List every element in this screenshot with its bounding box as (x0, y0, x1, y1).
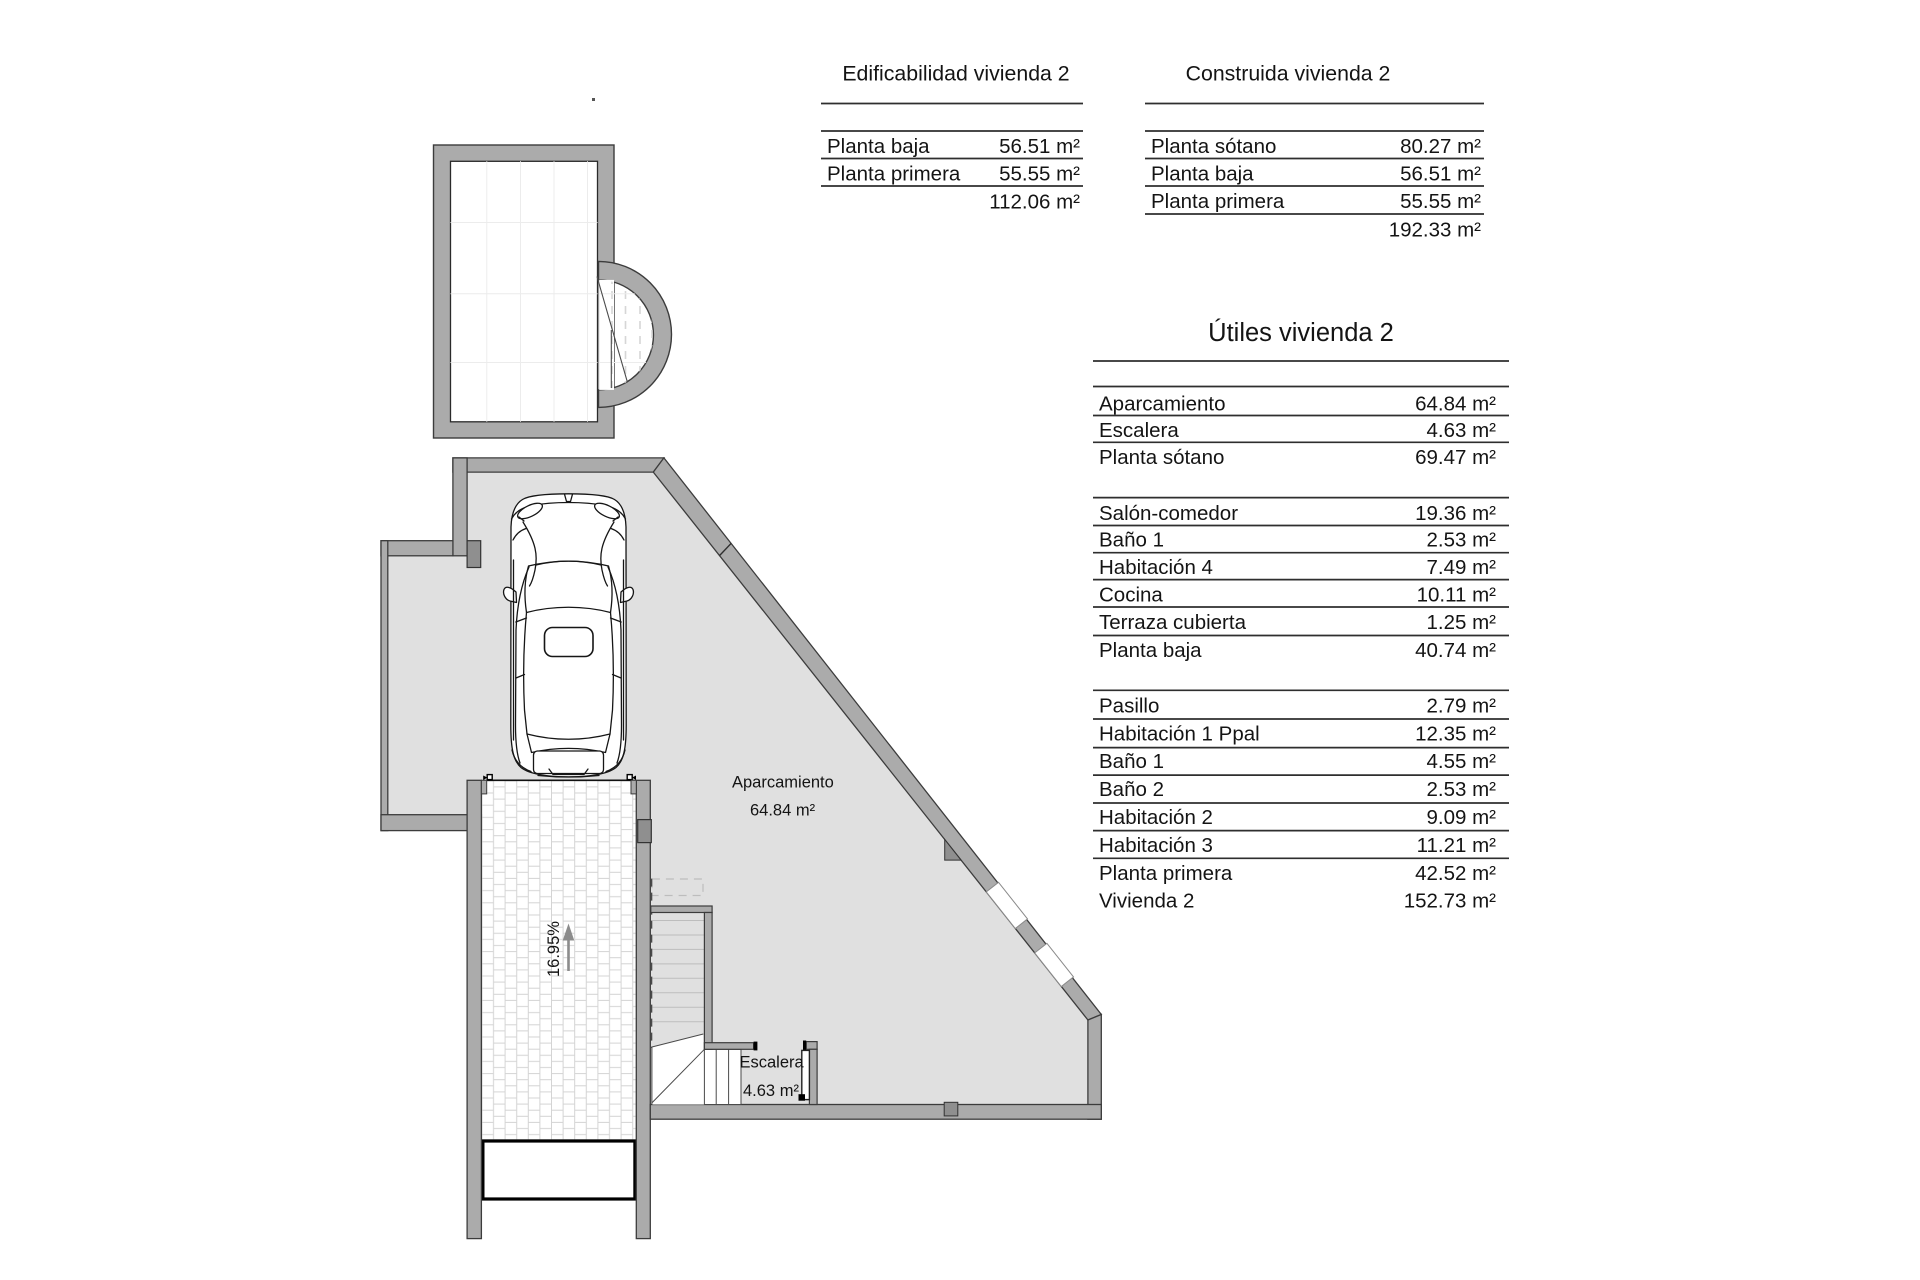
svg-text:Baño 2: Baño 2 (1099, 778, 1164, 801)
svg-text:Cocina: Cocina (1099, 583, 1163, 606)
svg-text:4.63 m²: 4.63 m² (743, 1082, 799, 1100)
svg-text:11.21 m²: 11.21 m² (1417, 834, 1497, 857)
svg-text:64.84 m²: 64.84 m² (750, 802, 816, 820)
svg-text:Baño 1: Baño 1 (1099, 750, 1164, 773)
svg-text:Pasillo: Pasillo (1099, 694, 1159, 717)
svg-text:4.63 m²: 4.63 m² (1427, 419, 1497, 442)
svg-text:10.11 m²: 10.11 m² (1417, 583, 1497, 606)
svg-text:56.51 m²: 56.51 m² (1400, 162, 1481, 185)
svg-text:1.25 m²: 1.25 m² (1427, 611, 1497, 634)
svg-text:Habitación 2: Habitación 2 (1099, 806, 1213, 829)
svg-text:Habitación 1 Ppal: Habitación 1 Ppal (1099, 722, 1260, 745)
svg-text:55.55 m²: 55.55 m² (999, 162, 1080, 185)
svg-text:Construida vivienda 2: Construida vivienda 2 (1186, 62, 1391, 86)
svg-text:Terraza cubierta: Terraza cubierta (1099, 611, 1247, 634)
svg-text:69.47 m²: 69.47 m² (1415, 446, 1496, 469)
svg-text:9.09 m²: 9.09 m² (1427, 806, 1497, 829)
svg-text:Escalera: Escalera (740, 1054, 805, 1072)
svg-text:7.49 m²: 7.49 m² (1427, 556, 1497, 579)
svg-text:2.53 m²: 2.53 m² (1427, 528, 1497, 551)
svg-text:Habitación 3: Habitación 3 (1099, 834, 1213, 857)
svg-text:Escalera: Escalera (1099, 419, 1179, 442)
svg-text:Planta baja: Planta baja (1099, 639, 1202, 662)
svg-text:Salón-comedor: Salón-comedor (1099, 502, 1238, 525)
svg-text:40.74 m²: 40.74 m² (1415, 639, 1496, 662)
svg-text:2.79 m²: 2.79 m² (1427, 694, 1497, 717)
svg-text:Planta baja: Planta baja (1151, 162, 1254, 185)
svg-text:Planta primera: Planta primera (1099, 862, 1233, 885)
svg-text:Aparcamiento: Aparcamiento (732, 774, 834, 792)
svg-text:Vivienda 2: Vivienda 2 (1099, 889, 1194, 912)
svg-text:Habitación 4: Habitación 4 (1099, 556, 1213, 579)
svg-text:192.33 m²: 192.33 m² (1389, 218, 1481, 241)
svg-text:Aparcamiento: Aparcamiento (1099, 392, 1225, 415)
svg-text:Planta primera: Planta primera (1151, 190, 1285, 213)
svg-text:Planta baja: Planta baja (827, 135, 930, 158)
svg-text:Edificabilidad vivienda 2: Edificabilidad vivienda 2 (842, 62, 1069, 86)
svg-text:Planta sótano: Planta sótano (1099, 446, 1224, 469)
svg-text:4.55 m²: 4.55 m² (1427, 750, 1497, 773)
svg-text:80.27 m²: 80.27 m² (1400, 135, 1481, 158)
svg-text:Planta primera: Planta primera (827, 162, 961, 185)
svg-text:56.51 m²: 56.51 m² (999, 135, 1080, 158)
svg-text:Baño 1: Baño 1 (1099, 528, 1164, 551)
svg-text:2.53 m²: 2.53 m² (1427, 778, 1497, 801)
svg-text:Planta sótano: Planta sótano (1151, 135, 1276, 158)
svg-text:152.73 m²: 152.73 m² (1404, 889, 1496, 912)
svg-text:64.84 m²: 64.84 m² (1415, 392, 1496, 415)
svg-text:19.36 m²: 19.36 m² (1415, 502, 1496, 525)
svg-text:12.35 m²: 12.35 m² (1415, 722, 1496, 745)
svg-text:55.55 m²: 55.55 m² (1400, 190, 1481, 213)
svg-text:112.06 m²: 112.06 m² (989, 190, 1080, 213)
svg-text:16.95%: 16.95% (545, 921, 563, 977)
svg-text:Útiles vivienda 2: Útiles vivienda 2 (1208, 318, 1394, 347)
svg-text:42.52 m²: 42.52 m² (1415, 862, 1496, 885)
